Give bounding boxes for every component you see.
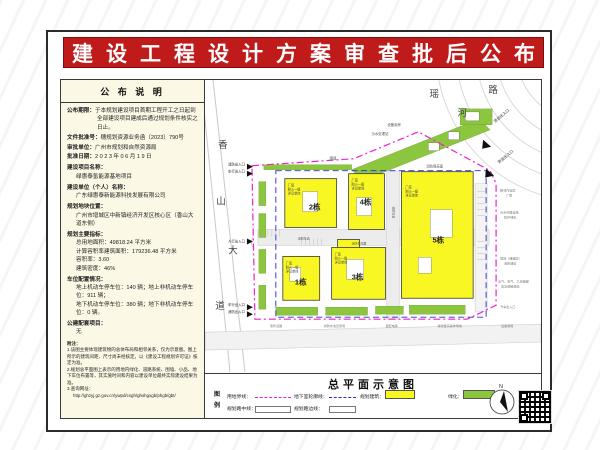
- svg-text:消防通道: 消防通道: [504, 260, 516, 265]
- svg-text:污水处理设施: 污水处理设施: [500, 210, 518, 215]
- svg-text:堆场（储罐区）: 堆场（储罐区）: [500, 255, 522, 260]
- road-label: 河: [457, 107, 467, 119]
- legend-header-li: 例: [214, 400, 220, 409]
- indicator-density: 建筑密度：46%: [76, 265, 198, 273]
- field-value: 广州市规划和自然资源局: [95, 145, 157, 151]
- parking-above: 地上机动车停车位：140 辆；地上非机动车停车位：911 辆；: [76, 284, 198, 301]
- svg-text:消防水池及泵房: 消防水池及泵房: [324, 323, 346, 328]
- legend-swatch-road-center: [255, 406, 291, 413]
- field-label: 公布期限：: [67, 108, 95, 114]
- map-annotation: 围墙: [330, 156, 337, 161]
- legend-item-building: 规划建筑：: [360, 393, 384, 400]
- field-value: 穗规划资源业务函〔2023〕790号: [101, 135, 184, 141]
- building-label: 2栋: [309, 202, 321, 212]
- map-annotation: 消防车道: [298, 235, 310, 240]
- legend-item-road-edge: 规划路边线：: [294, 405, 323, 412]
- road-label: 大: [228, 244, 238, 256]
- footer-panel: 总平面示意图 图 例 用地界线： 地下室轮廓线： 规划建筑： 绿化： 规划路中线…: [205, 373, 541, 419]
- svg-text:消防登高操作场地: 消防登高操作场地: [437, 323, 462, 328]
- legend-swatch-basement: [329, 397, 356, 398]
- parking-label: 车位配置情况：: [67, 276, 198, 284]
- entrance-label: 消防出入口: [228, 162, 245, 167]
- qr-finder-icon: [520, 414, 528, 422]
- map-annotation: 消防登高面: [426, 164, 444, 169]
- indicators-label: 规划主要指标：: [67, 231, 198, 239]
- north-label: N: [499, 384, 503, 390]
- field-label: 审批单位：: [67, 145, 95, 151]
- qr-code: [518, 390, 552, 424]
- plot-location-label: 规划地块位置：: [67, 203, 198, 211]
- map-annotation: 消防车道: [391, 207, 396, 219]
- svg-text:详见单体: 详见单体: [288, 191, 302, 196]
- svg-text:相邻作业区: 相邻作业区: [500, 188, 515, 193]
- building-label: 4栋: [360, 197, 372, 207]
- entrance-label: 车行出入口: [228, 302, 245, 307]
- query-url: http://ghzyj.gz.gov.cn/ywpd/csgh/ghshgxg…: [73, 393, 198, 400]
- legend-item-green: 绿化：: [448, 393, 462, 400]
- approval-date: 批准日期：2023年06月19日: [67, 153, 198, 161]
- svg-text:厂房: 厂房: [506, 193, 512, 198]
- approval-authority: 审批单位：广州市规划和自然资源局: [67, 144, 198, 152]
- road-label: 道: [215, 300, 225, 312]
- builder-name-label: 建设单位（个人）名称：: [67, 184, 198, 192]
- page-title: 建设工程设计方案审查批后公布: [59, 38, 548, 68]
- legend-item-road-center: 规划路中线：: [227, 405, 256, 412]
- project-name-label: 建设项目名称：: [67, 164, 198, 172]
- legend-swatch-road-edge: [329, 406, 356, 413]
- legend-item-basement: 地下室轮廓线：: [294, 393, 328, 400]
- building-label: 3栋: [352, 271, 364, 281]
- svg-text:详见单体: 详见单体: [335, 259, 349, 264]
- public-facility-value: 无: [76, 328, 198, 336]
- svg-text:详见单体: 详见单体: [286, 268, 300, 273]
- public-facility-label: 公建配套项目：: [67, 320, 198, 328]
- note-2: 2.规划总平面图上表示的用地内绿化、道路系统、围墙、小品、地下车位布置等，其实施…: [67, 367, 198, 387]
- svg-text:氢气、氧气、乙炔储罐: 氢气、氧气、乙炔储罐: [498, 278, 529, 283]
- notice-panel-header: 公 布 说 明: [61, 80, 204, 103]
- entrance-arrow-icon: [247, 304, 253, 310]
- road-label: 路: [488, 84, 498, 96]
- road-label: 山: [216, 197, 225, 208]
- entrance-arrow-icon: [247, 311, 253, 317]
- page-background: 建设工程设计方案审查批后公布 公 布 说 明 公布期限：于本规划建设项目首期工程…: [0, 0, 600, 450]
- legend-swatch-boundary: [255, 397, 291, 398]
- entrance-label: 货运出入口: [493, 108, 511, 124]
- svg-text:防护绿化: 防护绿化: [504, 215, 516, 220]
- entrance-arrow-icon: [482, 140, 491, 149]
- notice-body: 公布期限：于本规划建设项目首期工程开工之日起到全部建设项目建成后通过规划条件核实…: [61, 103, 204, 400]
- notice-panel: 公 布 说 明 公布期限：于本规划建设项目首期工程开工之日起到全部建设项目建成后…: [60, 79, 205, 419]
- qr-finder-icon: [542, 392, 550, 400]
- qr-finder-icon: [520, 392, 528, 400]
- svg-text:汽车出入口: 汽车出入口: [500, 304, 515, 309]
- indicator-floor-area: 计算容积率建筑面积：179236.48 平方米: [76, 248, 198, 256]
- site-plan-map: 2栋 4栋 5栋 1栋 3栋 厂房耐火一级详见单体 厂房耐火一级详见单体 厂房耐…: [205, 80, 541, 373]
- entrance-label: 消防出入口: [228, 309, 245, 314]
- legend-swatch-building: [385, 390, 415, 399]
- svg-text:现状道路: 现状道路: [270, 323, 282, 328]
- indicator-land-area: 总用地面积：49818.24 平方米: [76, 239, 198, 247]
- road-label: 香: [218, 140, 228, 151]
- entrance-label: 车行出入口: [228, 169, 245, 174]
- field-value: 2023年06月19日: [95, 154, 153, 160]
- builder-name-value: 广东绿惠泰新能源科技发展有限公司: [76, 192, 198, 200]
- road-label: 瑶: [430, 88, 440, 100]
- publish-period: 公布期限：于本规划建设项目首期工程开工之日起到全部建设项目建成后通过规划条件核实…: [67, 107, 198, 132]
- building-label: 1栋: [295, 276, 307, 286]
- approval-doc-no: 文件批准号：穗规划资源业务函〔2023〕790号: [67, 134, 198, 142]
- plot-location-value: 广州市增城区中新镇经济开发区核心区（香山大道东侧）: [76, 212, 198, 229]
- indicator-plot-ratio: 容积率：3.60: [76, 256, 198, 264]
- legend-header-tu: 图: [214, 389, 220, 398]
- field-label: 文件批准号：: [67, 135, 101, 141]
- north-compass-icon: N: [486, 380, 518, 418]
- note-1: 1.该图主要体现建筑物的总体布局和相邻关系，仅为示意图。图上所示的建筑间距、尺寸…: [67, 347, 198, 367]
- entrance-label: 货运出入口: [496, 148, 514, 164]
- poster: 建设工程设计方案审查批后公布 公 布 说 明 公布期限：于本规划建设项目首期工程…: [46, 30, 552, 432]
- svg-text:设备用房: 设备用房: [501, 323, 513, 328]
- legend-item-boundary: 用地界线：: [227, 393, 251, 400]
- svg-text:详见单体: 详见单体: [352, 186, 366, 191]
- map-annotation: 消防登高面: [352, 240, 367, 245]
- svg-text:应急疏散通道: 应急疏散通道: [501, 283, 519, 288]
- building-label: 5栋: [432, 234, 444, 244]
- entrance-label: 人行出入口: [228, 238, 245, 243]
- project-name-value: 绿惠泰氢能源基地项目: [76, 173, 198, 181]
- parking-below: 地下机动车停车位：380 辆；地下非机动车停车位：0 辆。: [76, 301, 198, 318]
- svg-text:变配电房: 变配电房: [385, 323, 397, 328]
- field-label: 批准日期：: [67, 154, 95, 160]
- svg-text:详见单体: 详见单体: [405, 193, 419, 198]
- site-plan-panel: 2栋 4栋 5栋 1栋 3栋 厂房耐火一级详见单体 厂房耐火一级详见单体 厂房耐…: [204, 79, 542, 419]
- map-annotation: 污水处理站: [372, 131, 390, 136]
- map-annotation: 设备用房: [387, 122, 401, 127]
- field-value: 于本规划建设项目首期工程开工之日起到全部建设项目建成后通过规划条件核实之日止。: [95, 108, 198, 131]
- title-banner: 建设工程设计方案审查批后公布: [63, 37, 544, 68]
